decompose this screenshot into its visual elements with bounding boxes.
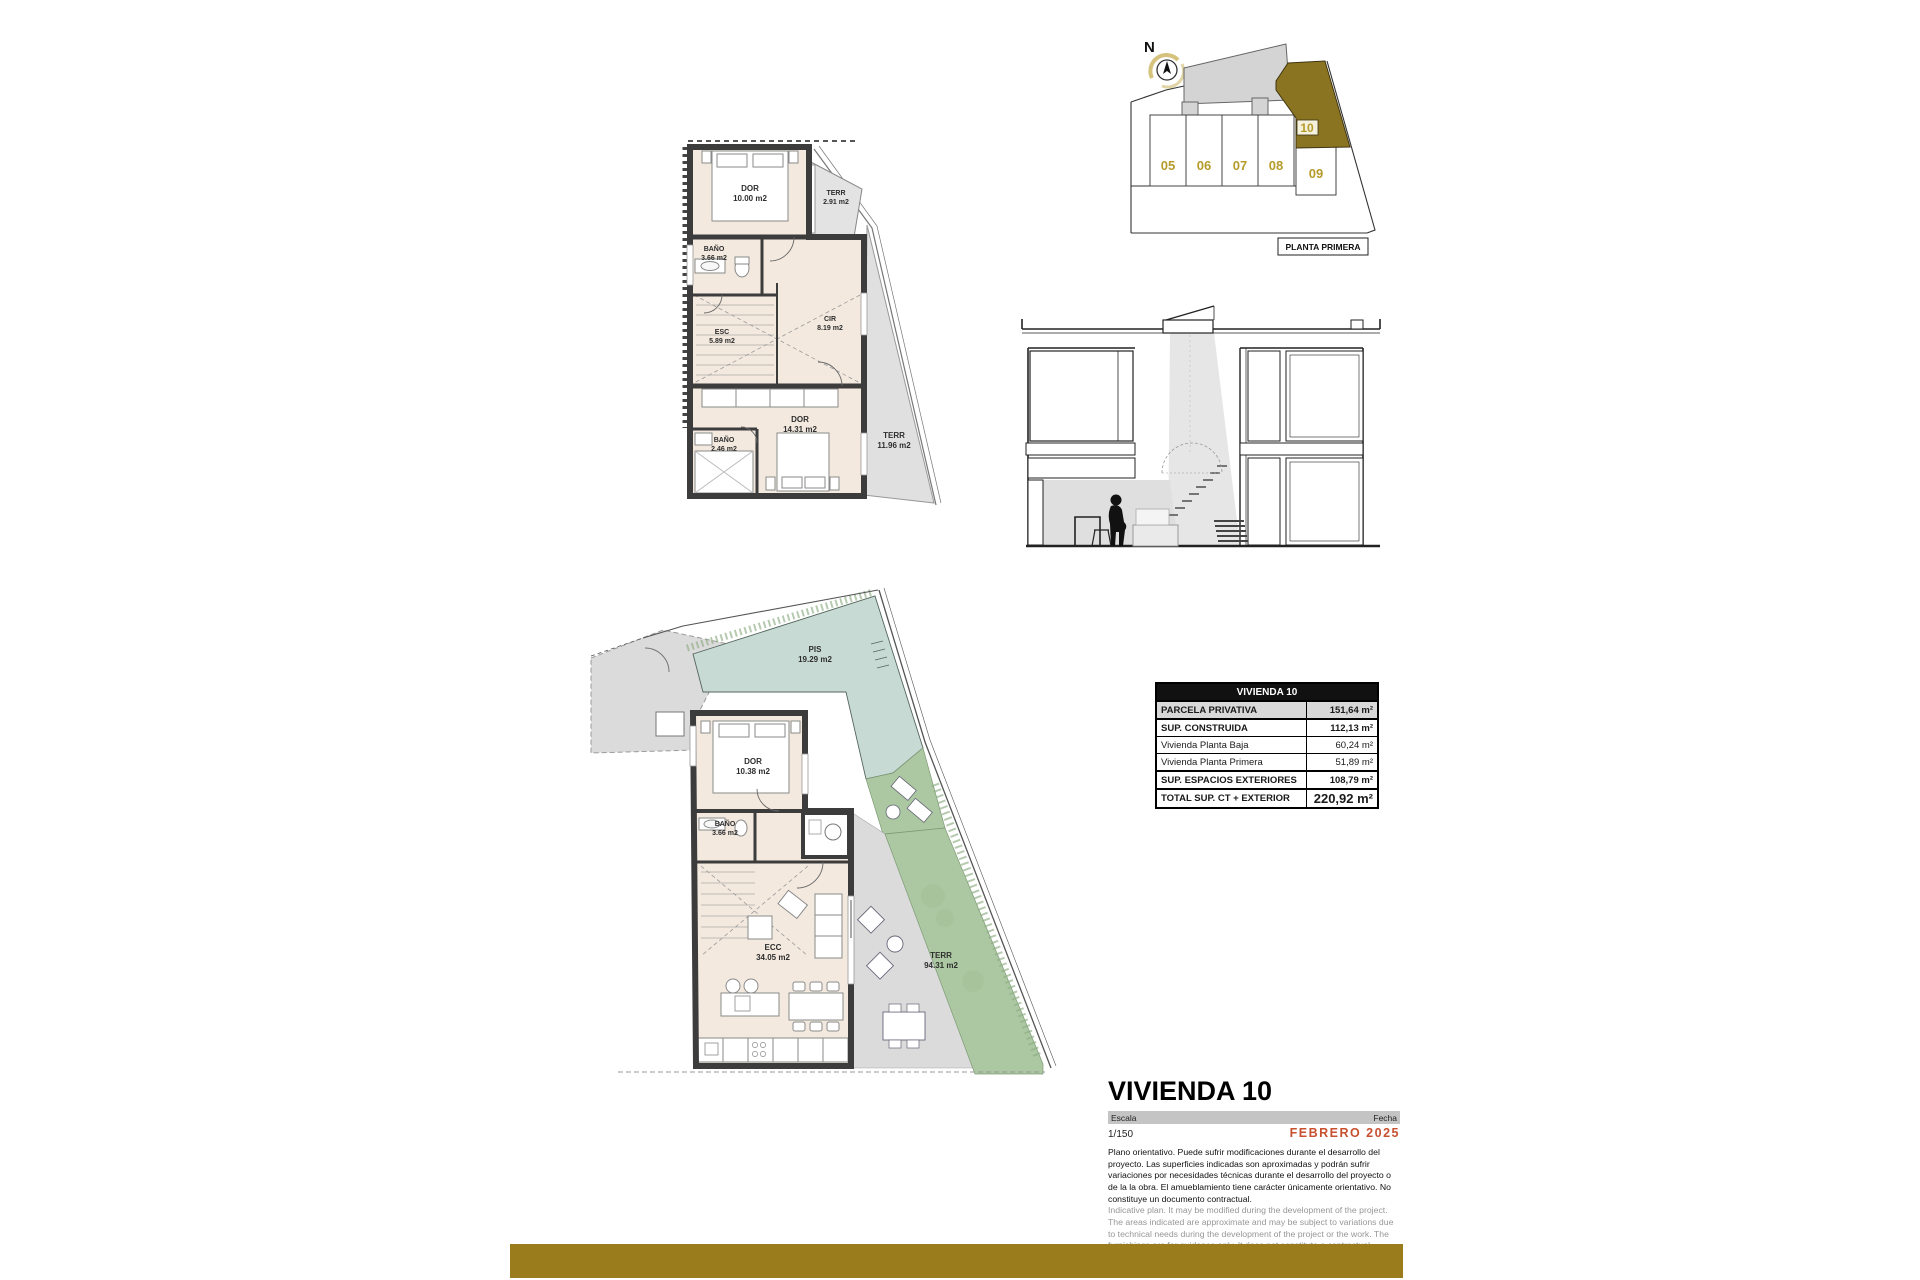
svg-text:11.96 m2: 11.96 m2 (877, 441, 911, 450)
table-row-value: 51,89 m² (1307, 754, 1378, 772)
table-row-label: SUP. CONSTRUIDA (1156, 719, 1307, 737)
area-summary-table: VIVIENDA 10 PARCELA PRIVATIVA 151,64 m² … (1155, 682, 1379, 809)
unit-09-label: 09 (1309, 166, 1323, 181)
date-label: Fecha (1373, 1113, 1397, 1123)
unit-06-label: 06 (1197, 158, 1211, 173)
table-row-value: 108,79 m² (1307, 771, 1378, 789)
skylight (1163, 306, 1214, 333)
table-row-value: 151,64 m² (1307, 701, 1378, 719)
disclaimer-spanish: Plano orientativo. Puede sufrir modifica… (1108, 1147, 1400, 1205)
unit-05-label: 05 (1161, 158, 1175, 173)
svg-text:TERR: TERR (930, 951, 952, 960)
footer-accent-bar (510, 1244, 1403, 1278)
svg-text:10.38 m2: 10.38 m2 (736, 767, 770, 776)
site-caption: PLANTA PRIMERA (1285, 242, 1360, 252)
svg-text:10.00 m2: 10.00 m2 (733, 194, 767, 203)
unit-07-label: 07 (1233, 158, 1247, 173)
plan-sheet: N (0, 0, 1920, 1280)
table-row-label: PARCELA PRIVATIVA (1156, 701, 1307, 719)
scale-date-bar: Escala Fecha (1108, 1111, 1400, 1124)
first-floor-plan: DOR 10.00 m2 TERR 2.91 m2 BAÑO 3.66 m2 E… (562, 133, 947, 511)
svg-text:5.89 m2: 5.89 m2 (709, 338, 735, 345)
svg-text:14.31 m2: 14.31 m2 (783, 425, 817, 434)
scale-value: 1/150 (1108, 1129, 1133, 1140)
svg-text:94.31 m2: 94.31 m2 (924, 961, 958, 970)
svg-text:DOR: DOR (744, 757, 762, 766)
svg-text:3.66 m2: 3.66 m2 (712, 830, 738, 837)
utility-cell (803, 813, 849, 857)
table-row-label: TOTAL SUP. CT + EXTERIOR (1156, 789, 1307, 808)
svg-text:34.05 m2: 34.05 m2 (756, 953, 790, 962)
section-drawing (1018, 303, 1400, 558)
svg-text:BAÑO: BAÑO (704, 244, 725, 253)
svg-text:BAÑO: BAÑO (714, 435, 735, 444)
svg-text:2.46 m2: 2.46 m2 (711, 446, 737, 453)
svg-text:8.19 m2: 8.19 m2 (817, 325, 843, 332)
svg-text:3.66 m2: 3.66 m2 (701, 255, 727, 262)
svg-text:2.91 m2: 2.91 m2 (823, 199, 849, 206)
unit-08-label: 08 (1269, 158, 1283, 173)
table-row-label: SUP. ESPACIOS EXTERIORES (1156, 771, 1307, 789)
table-row-label: Vivienda Planta Primera (1156, 754, 1307, 772)
terrace-large (864, 225, 934, 503)
table-header: VIVIENDA 10 (1156, 683, 1378, 701)
light-shaft (1168, 333, 1240, 545)
svg-text:DOR: DOR (741, 184, 759, 193)
date-value: FEBRERO 2025 (1290, 1126, 1400, 1140)
svg-text:TERR: TERR (883, 431, 905, 440)
north-label: N (1144, 39, 1155, 56)
svg-text:ECC: ECC (765, 943, 782, 952)
svg-text:TERR: TERR (826, 190, 845, 197)
table-row-label: Vivienda Planta Baja (1156, 737, 1307, 754)
ground-floor-plan: PIS 19.29 m2 DOR 10.38 m2 BAÑO 3.66 m2 E… (583, 566, 1060, 1080)
table-row-value: 60,24 m² (1307, 737, 1378, 754)
scale-label: Escala (1111, 1113, 1137, 1123)
svg-text:DOR: DOR (791, 415, 809, 424)
svg-text:BAÑO: BAÑO (715, 819, 736, 828)
svg-text:19.29 m2: 19.29 m2 (798, 655, 832, 664)
title-block: VIVIENDA 10 Escala Fecha 1/150 FEBRERO 2… (1108, 1078, 1400, 1264)
site-key-plan: N (1126, 28, 1394, 266)
svg-text:PIS: PIS (809, 645, 823, 654)
north-compass-icon: N (1144, 39, 1184, 87)
sheet-title: VIVIENDA 10 (1108, 1078, 1400, 1105)
svg-text:CIR: CIR (824, 316, 836, 323)
svg-text:ESC: ESC (715, 329, 729, 336)
table-row-value: 112,13 m² (1307, 719, 1378, 737)
table-row-value: 220,92 m² (1307, 789, 1378, 808)
unit-10-label: 10 (1300, 121, 1314, 135)
